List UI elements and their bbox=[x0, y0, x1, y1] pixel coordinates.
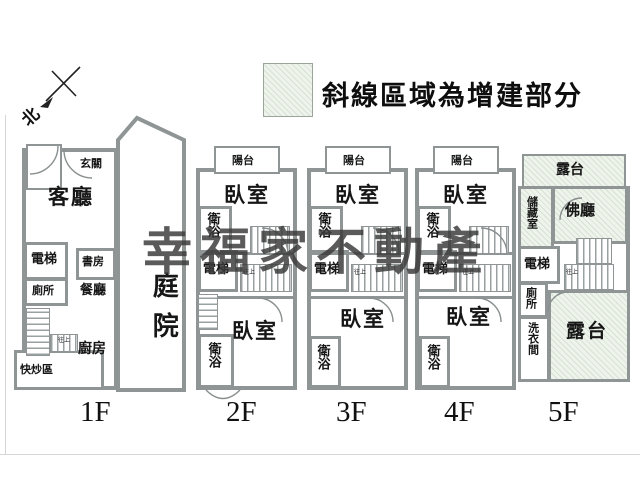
staircase-small-2f bbox=[198, 294, 218, 330]
floor-label-1f: 1F bbox=[80, 396, 111, 429]
stair-note-5f: 往上 bbox=[566, 270, 578, 276]
room-label-bedroom-bottom-3f: 臥室 bbox=[340, 308, 386, 330]
room-label-living-1f: 客廳 bbox=[48, 186, 94, 208]
floor-label-3f: 3F bbox=[336, 396, 367, 429]
floor-label-5f: 5F bbox=[548, 396, 579, 429]
room-label-bath-bottom-3f: 衛浴 bbox=[315, 344, 329, 370]
staircase-upper-5f bbox=[576, 238, 612, 264]
room-label-buddha-5f: 佛廳 bbox=[565, 203, 595, 219]
floor-label-2f: 2F bbox=[226, 396, 257, 429]
room-label-stirfry-1f: 快炒區 bbox=[20, 364, 53, 376]
room-label-balcony-4f: 陽台 bbox=[451, 155, 473, 167]
room-label-balcony-2f: 陽台 bbox=[232, 155, 254, 167]
room-label-elevator-1f: 電梯 bbox=[31, 253, 57, 267]
staircase-lower-5f bbox=[564, 264, 614, 290]
room-label-terrace-bottom-5f: 露台 bbox=[566, 322, 608, 342]
room-label-terrace-top-5f: 露台 bbox=[556, 163, 584, 178]
legend-hatch-swatch bbox=[263, 63, 313, 117]
room-label-bedroom-top-4f: 臥室 bbox=[443, 184, 489, 206]
scan-edge-left bbox=[5, 115, 6, 455]
stair-note-1f: 往上 bbox=[58, 338, 70, 344]
north-arrow-icon: 北 bbox=[18, 55, 103, 130]
watermark: 幸福家不動產 bbox=[142, 212, 490, 284]
room-label-study-1f: 書房 bbox=[82, 256, 104, 268]
room-label-kitchen-1f: 廚房 bbox=[78, 342, 106, 357]
room-label-bedroom-top-3f: 臥室 bbox=[335, 184, 381, 206]
floor-label-4f: 4F bbox=[444, 396, 475, 429]
scan-edge-bottom bbox=[0, 454, 640, 455]
room-label-toilet-5f: 廁所 bbox=[525, 287, 537, 309]
room-label-elevator-5f: 電梯 bbox=[524, 258, 550, 272]
floorplan-canvas: 北 斜線區域為增建部分 玄關 客廳 電梯 書房 廁所 餐廳 廚房 快炒區 庭院 … bbox=[0, 0, 640, 480]
room-label-bath-bottom-2f: 衛浴 bbox=[206, 342, 220, 368]
wall-3f-low bbox=[311, 296, 405, 299]
staircase-1f bbox=[26, 308, 50, 356]
room-label-bedroom-top-2f: 臥室 bbox=[224, 184, 270, 206]
room-label-storage-5f: 儲藏室 bbox=[526, 196, 538, 229]
room-label-courtyard-1f: 庭院 bbox=[149, 272, 176, 352]
room-label-laundry-5f: 洗衣間 bbox=[527, 322, 539, 355]
room-label-bath-bottom-4f: 衛浴 bbox=[425, 344, 439, 370]
room-label-bedroom-bottom-4f: 臥室 bbox=[446, 306, 492, 328]
room-label-balcony-3f: 陽台 bbox=[343, 155, 365, 167]
room-label-dining-1f: 餐廳 bbox=[80, 284, 106, 298]
wall-4f-low bbox=[419, 296, 513, 299]
room-label-entry-1f: 玄關 bbox=[80, 158, 102, 170]
north-label: 北 bbox=[18, 104, 44, 130]
room-entry-1f bbox=[26, 144, 62, 190]
room-label-bedroom-bottom-2f: 臥室 bbox=[232, 320, 278, 342]
legend-text: 斜線區域為增建部分 bbox=[322, 74, 583, 113]
room-label-toilet-1f: 廁所 bbox=[32, 285, 54, 297]
